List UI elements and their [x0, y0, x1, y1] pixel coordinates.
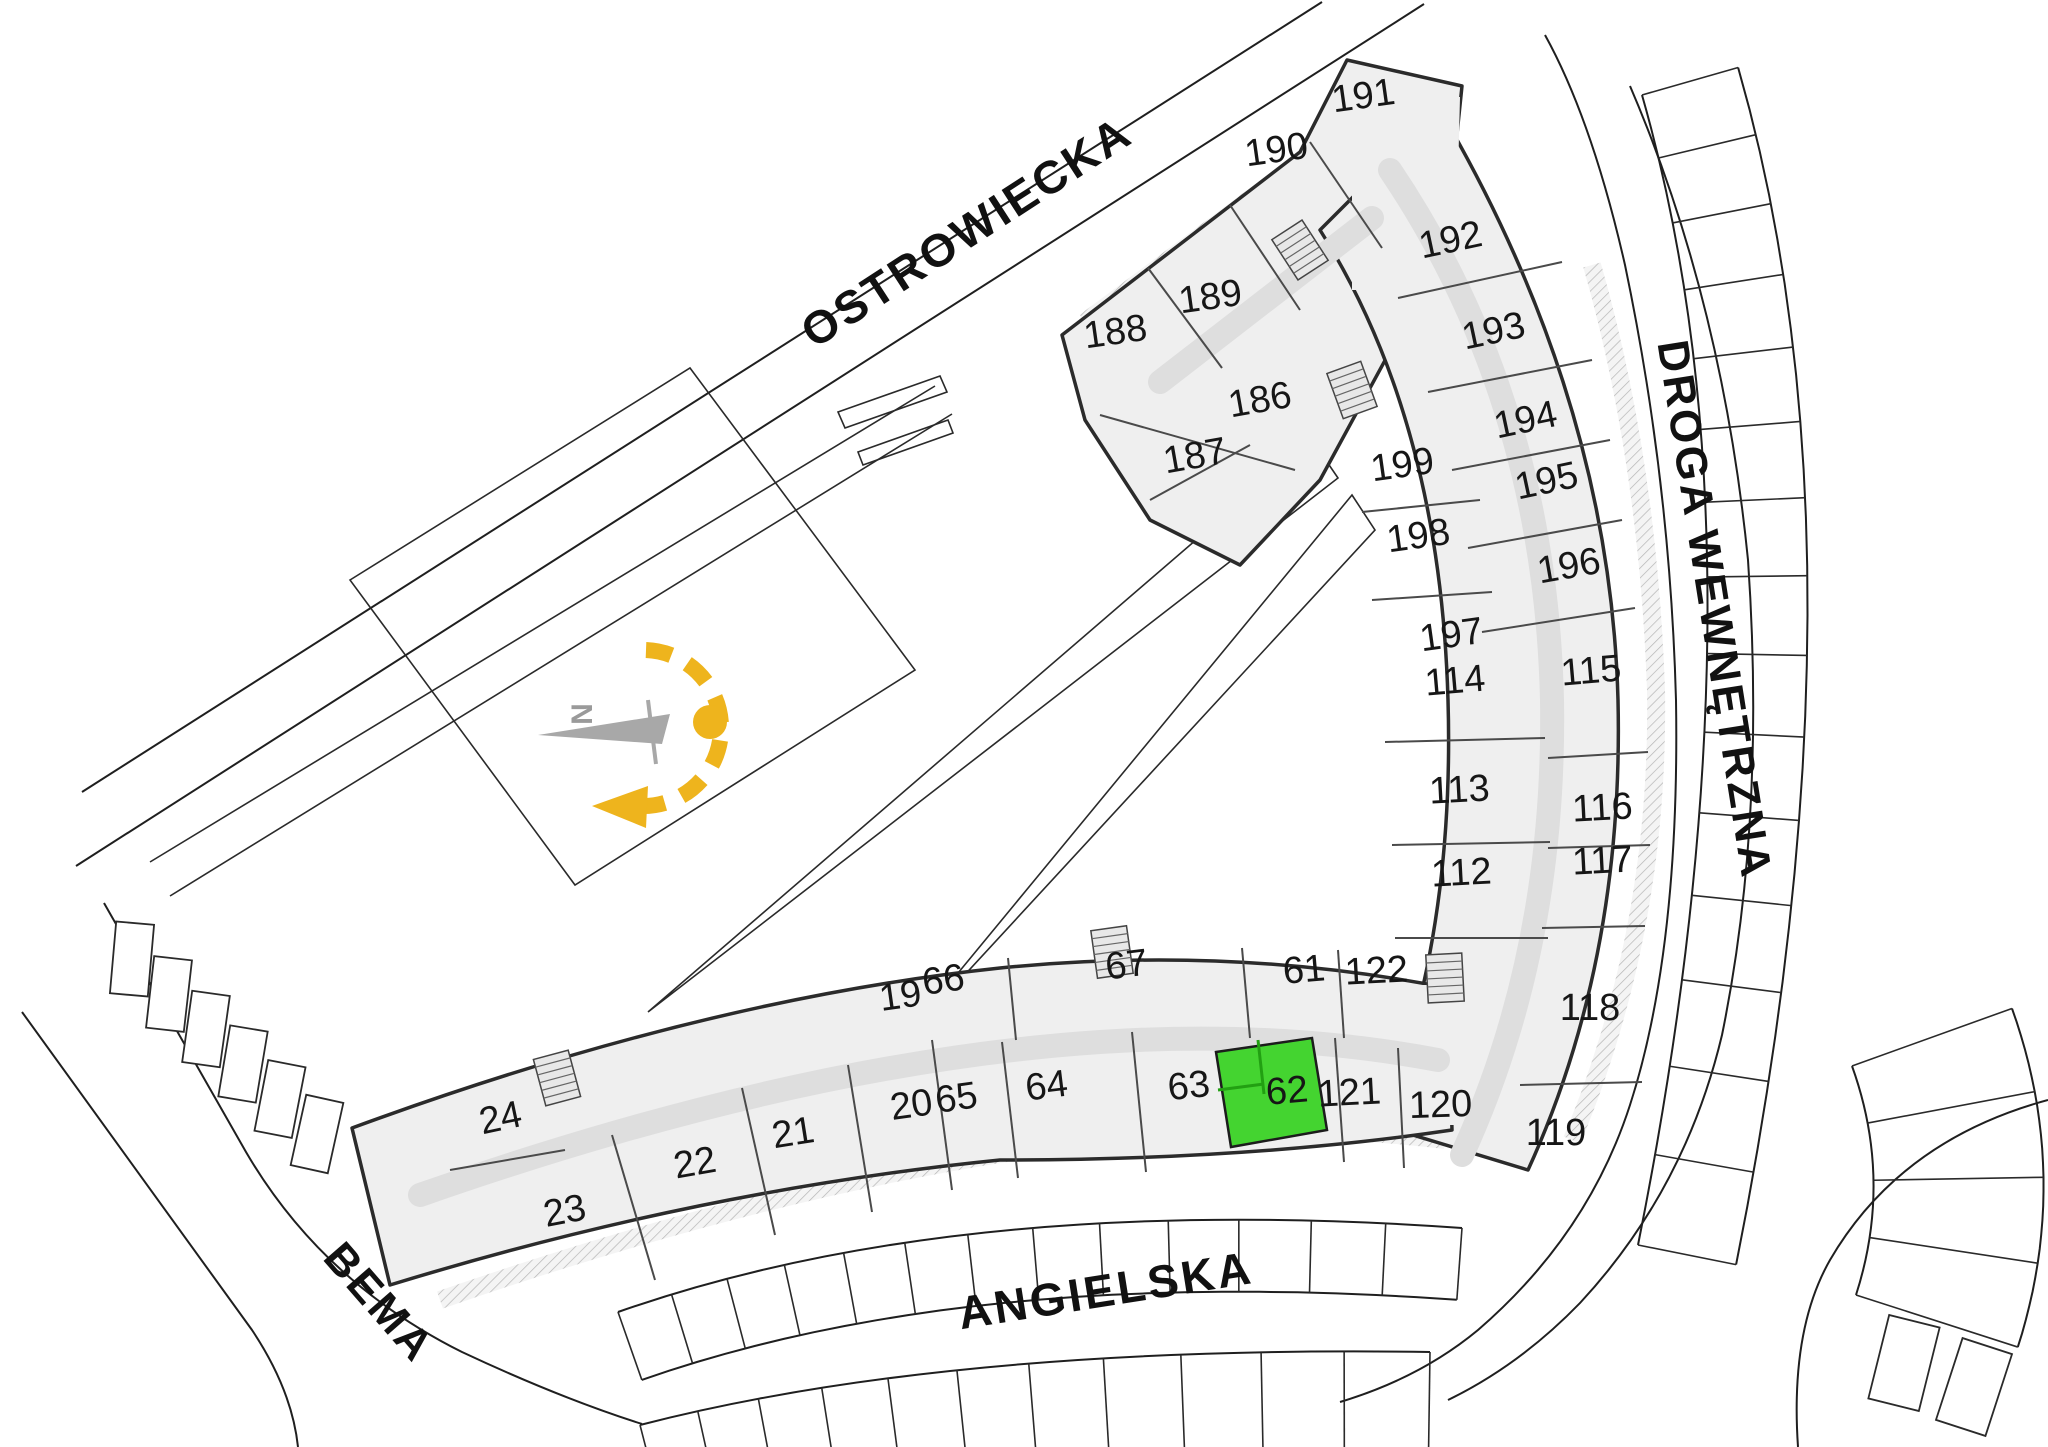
- street-label-angielska: ANGIELSKA: [954, 1241, 1256, 1339]
- unit-label-191[interactable]: 191: [1329, 71, 1398, 121]
- unit-label-22[interactable]: 22: [670, 1139, 719, 1188]
- unit-label-67[interactable]: 67: [1103, 942, 1150, 989]
- unit-label-63[interactable]: 63: [1166, 1063, 1212, 1109]
- unit-label-116[interactable]: 116: [1571, 785, 1634, 830]
- unit-label-118[interactable]: 118: [1560, 987, 1621, 1029]
- unit-label-190[interactable]: 190: [1242, 125, 1311, 175]
- compass-arrowhead: [592, 786, 648, 828]
- compass-north-label: N: [566, 703, 599, 725]
- staircase-icon: [1426, 953, 1464, 1003]
- unit-label-188[interactable]: 188: [1081, 307, 1150, 357]
- street-label-droga-wewnetrzna: DROGA WEWNĘTRZNA: [1647, 337, 1781, 883]
- unit-label-189[interactable]: 189: [1176, 272, 1245, 322]
- unit-label-112[interactable]: 112: [1430, 850, 1493, 895]
- building-complex: 1861871881891901911921931941951961971981…: [352, 60, 1656, 1300]
- unit-label-120[interactable]: 120: [1408, 1083, 1473, 1127]
- unit-label-198[interactable]: 198: [1384, 511, 1453, 561]
- parking-pair-bottom-right: [1868, 1315, 2012, 1436]
- unit-label-21[interactable]: 21: [769, 1109, 817, 1157]
- site-plan-canvas: 1861871881891901911921931941951961971981…: [0, 0, 2048, 1447]
- site-plan: 1861871881891901911921931941951961971981…: [0, 0, 2048, 1447]
- unit-label-24[interactable]: 24: [475, 1093, 525, 1143]
- path-strip-1: [838, 376, 947, 428]
- unit-label-20[interactable]: 20: [887, 1081, 935, 1128]
- unit-label-66[interactable]: 66: [919, 956, 967, 1003]
- unit-label-197[interactable]: 197: [1417, 610, 1486, 660]
- unit-label-119[interactable]: 119: [1526, 1112, 1587, 1154]
- unit-label-62[interactable]: 62: [1264, 1068, 1310, 1114]
- parking-row-south-row: [640, 1351, 1430, 1447]
- compass-dot: [693, 705, 727, 739]
- unit-label-23[interactable]: 23: [540, 1187, 590, 1236]
- unit-label-19[interactable]: 19: [876, 972, 924, 1019]
- unit-label-113[interactable]: 113: [1428, 767, 1491, 812]
- parking-row-corner-row: [1852, 1008, 2044, 1347]
- unit-label-114[interactable]: 114: [1423, 657, 1487, 704]
- unit-label-121[interactable]: 121: [1317, 1070, 1383, 1115]
- unit-label-65[interactable]: 65: [932, 1074, 980, 1121]
- unit-label-61[interactable]: 61: [1281, 947, 1327, 993]
- unit-label-122[interactable]: 122: [1344, 948, 1410, 993]
- unit-label-64[interactable]: 64: [1023, 1063, 1070, 1110]
- unit-label-199[interactable]: 199: [1368, 440, 1437, 490]
- unit-label-117[interactable]: 117: [1571, 838, 1634, 883]
- unit-label-115[interactable]: 115: [1559, 647, 1623, 694]
- compass: N: [538, 650, 727, 828]
- parking-row-bema: [110, 921, 343, 1173]
